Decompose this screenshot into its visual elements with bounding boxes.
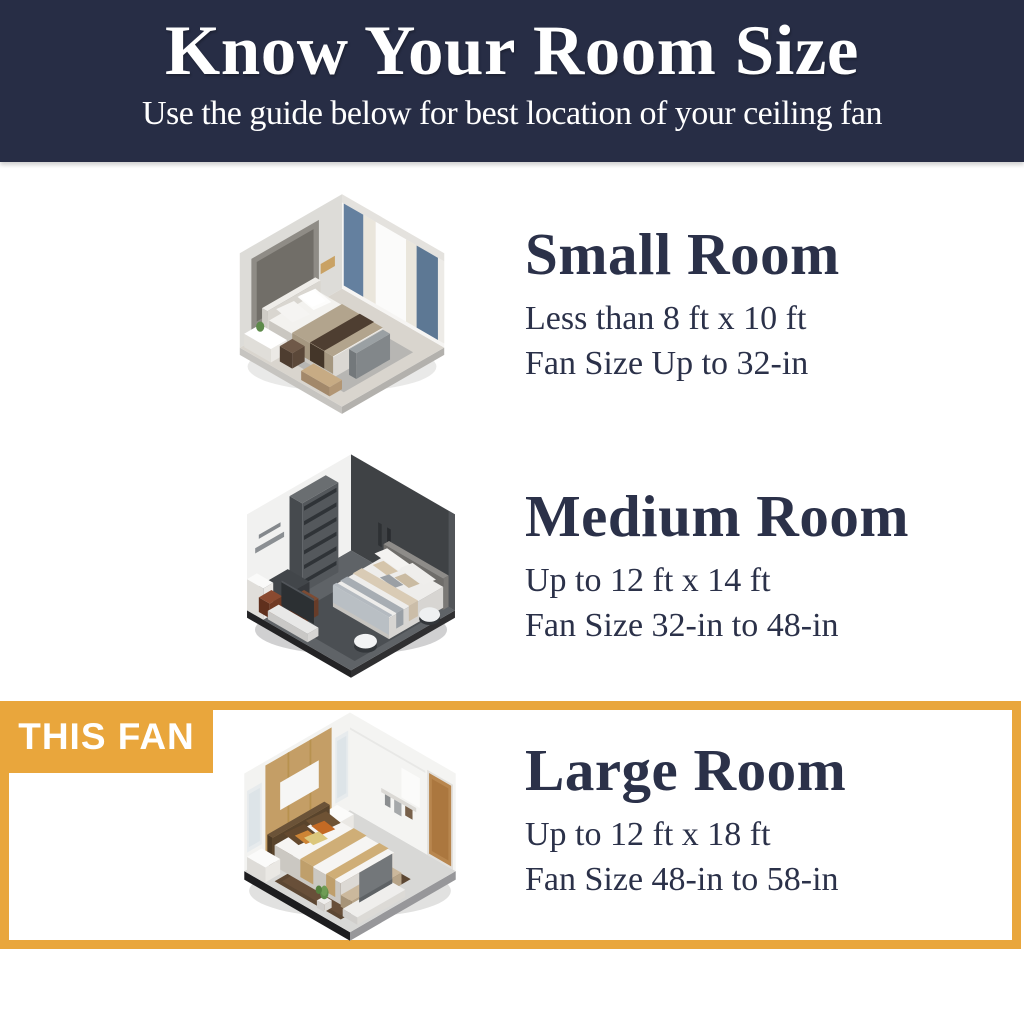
medium-room-fan-size: Fan Size 32-in to 48-in: [525, 603, 909, 648]
header-banner: Know Your Room Size Use the guide below …: [0, 0, 1024, 162]
small-room-illustration: [213, 186, 471, 420]
medium-room-dimensions: Up to 12 ft x 14 ft: [525, 558, 909, 603]
small-bedroom-isometric-image: [213, 186, 471, 420]
medium-room-title: Medium Room: [525, 486, 909, 546]
this-fan-badge: THIS FAN: [0, 701, 213, 773]
small-room-fan-size: Fan Size Up to 32-in: [525, 341, 840, 386]
large-room-title: Large Room: [525, 740, 846, 800]
medium-room-illustration: [224, 446, 478, 684]
small-room-title: Small Room: [525, 224, 840, 284]
page-subtitle: Use the guide below for best location of…: [0, 95, 1024, 133]
medium-bedroom-isometric-image: [224, 446, 478, 684]
large-bedroom-isometric-image: [216, 704, 484, 946]
large-room-fan-size: Fan Size 48-in to 58-in: [525, 857, 846, 902]
large-room-illustration: [216, 704, 484, 946]
page-title: Know Your Room Size: [0, 0, 1024, 89]
small-room-dimensions: Less than 8 ft x 10 ft: [525, 296, 840, 341]
large-room-dimensions: Up to 12 ft x 18 ft: [525, 812, 846, 857]
